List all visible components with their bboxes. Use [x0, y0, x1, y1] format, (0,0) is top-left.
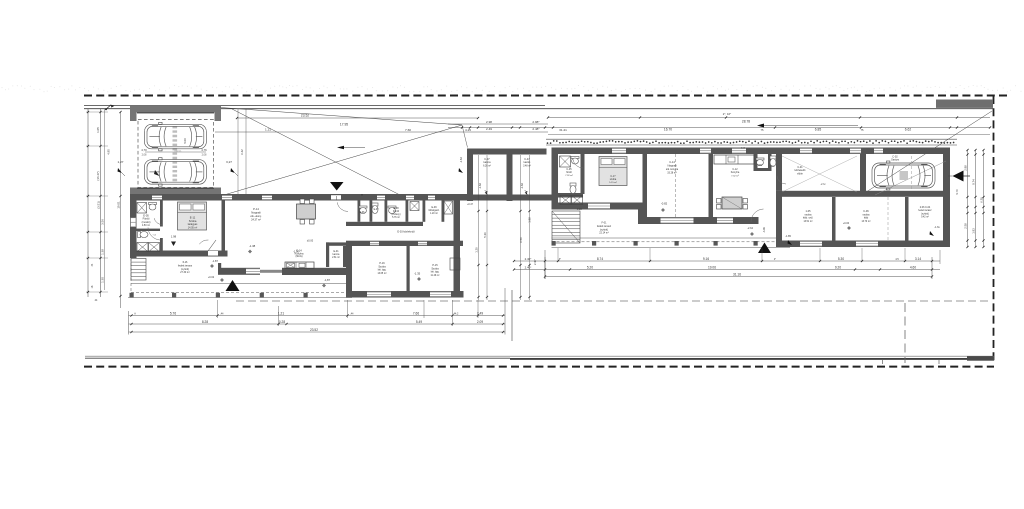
svg-text:tár.: tár.: [771, 165, 774, 168]
svg-text:±0.00: ±0.00: [307, 240, 314, 243]
svg-text:Garázs: Garázs: [891, 159, 900, 162]
svg-text:kazán: kazán: [524, 161, 531, 164]
svg-text:fedett terasz: fedett terasz: [918, 209, 932, 212]
svg-text:-1.6x: -1.6x: [934, 226, 940, 229]
svg-text:1,27: 1,27: [117, 160, 123, 164]
svg-text:+0.00: +0.00: [843, 222, 850, 225]
svg-text:▼: ▼: [361, 193, 364, 197]
svg-text:2.40°: 2.40°: [533, 259, 537, 265]
svg-text:C-14: C-14: [669, 160, 675, 164]
svg-text:16.70: 16.70: [664, 128, 672, 132]
svg-text:(3.51): (3.51): [97, 201, 101, 209]
svg-text:előtér: előtér: [797, 172, 803, 175]
svg-text:-2.3√: -2.3√: [820, 183, 826, 186]
svg-text:44,2: 44,2: [454, 312, 459, 315]
svg-text:2.40°: 2.40°: [525, 257, 532, 261]
svg-text:6.30: 6.30: [980, 197, 984, 203]
svg-text:13.70 m²: 13.70 m²: [861, 220, 870, 223]
svg-text:14.05 m²: 14.05 m²: [188, 226, 198, 229]
svg-text:14.5 m²: 14.5 m²: [609, 181, 617, 184]
svg-text:22.14 m²: 22.14 m²: [599, 232, 609, 235]
svg-text:1.21: 1.21: [265, 128, 271, 132]
svg-text:31.16: 31.16: [733, 272, 741, 276]
svg-text:két. ágy.: két. ágy.: [431, 271, 440, 274]
svg-text:szoba: szoba: [863, 212, 870, 216]
svg-text:6.62: 6.62: [905, 128, 912, 132]
svg-text:17.95: 17.95: [340, 123, 348, 127]
svg-text:31.41: 31.41: [559, 128, 567, 132]
svg-text:33.28 m²: 33.28 m²: [667, 171, 677, 174]
svg-text:23.52: 23.52: [301, 113, 309, 117]
svg-text:4°: 4°: [774, 258, 776, 261]
svg-text:4.50 m²: 4.50 m²: [142, 224, 150, 227]
svg-text:Nappali: Nappali: [251, 211, 261, 215]
svg-text:1.20: 1.20: [475, 247, 479, 253]
svg-text:2.09: 2.09: [477, 320, 483, 324]
svg-text:Szoba: Szoba: [378, 264, 386, 268]
svg-text:5.36: 5.36: [483, 232, 487, 238]
svg-text:3°: 3°: [559, 258, 561, 261]
svg-text:szoba: szoba: [805, 212, 812, 216]
svg-text:szoba: szoba: [610, 178, 617, 181]
svg-text:-1.38: -1.38: [249, 244, 256, 248]
svg-text:E-11: E-11: [190, 216, 196, 220]
svg-text:-0.82: -0.82: [661, 202, 668, 206]
svg-text:+0.47: +0.47: [467, 204, 474, 206]
svg-text:19.06: 19.06: [708, 265, 716, 269]
svg-text:Nappali: Nappali: [667, 164, 677, 168]
svg-text:4,70: 4,70: [141, 148, 147, 152]
svg-text:7.66: 7.66: [413, 311, 419, 315]
svg-text:13.65 m²: 13.65 m²: [377, 272, 386, 275]
svg-text:5.00: 5.00: [183, 138, 187, 144]
svg-text:1.98: 1.98: [171, 235, 177, 239]
svg-text:6.85: 6.85: [815, 128, 822, 132]
svg-text:2.49: 2.49: [486, 127, 492, 131]
svg-text:27.30 m²: 27.30 m²: [180, 271, 190, 274]
svg-text:5.20: 5.20: [587, 265, 593, 269]
svg-text:5.49: 5.49: [416, 320, 422, 324]
svg-text:11.46 m²: 11.46 m²: [431, 274, 440, 277]
svg-text:3.14: 3.14: [915, 257, 921, 261]
svg-text:4.85: 4.85: [107, 149, 111, 155]
svg-text:7.32 m²: 7.32 m²: [731, 174, 739, 177]
svg-text:fedett terasz: fedett terasz: [178, 263, 193, 267]
svg-text:fürdő: fürdő: [566, 171, 572, 174]
svg-text:Konyha: Konyha: [731, 171, 740, 174]
svg-text:1.05: 1.05: [96, 127, 100, 133]
svg-text:közlekedő: közlekedő: [795, 169, 806, 172]
svg-text:6.50: 6.50: [519, 237, 523, 243]
svg-text:2°, 16°: 2°, 16°: [723, 112, 731, 116]
svg-text:8.28: 8.28: [202, 320, 208, 324]
svg-text:2.40°: 2.40°: [525, 265, 532, 269]
svg-text:háló. szül.: háló. szül.: [803, 218, 814, 220]
svg-text:2.61 m²: 2.61 m²: [332, 256, 340, 259]
svg-text:1.38: 1.38: [101, 249, 105, 255]
svg-text:E-03 közlekedő: E-03 közlekedő: [397, 231, 415, 234]
svg-text:24.37 m²: 24.37 m²: [251, 218, 261, 221]
svg-text:-1.36: -1.36: [293, 250, 299, 254]
svg-text:1.21: 1.21: [278, 311, 284, 315]
svg-text:9.16: 9.16: [703, 257, 709, 261]
svg-text:2,08: 2,08: [202, 154, 207, 157]
svg-text:háló: háló: [864, 218, 869, 220]
svg-text:23.52: 23.52: [310, 328, 318, 332]
svg-text:9.20: 9.20: [835, 265, 841, 269]
svg-text:két. ágy.: két. ágy.: [378, 269, 387, 272]
svg-text:1.30: 1.30: [101, 277, 105, 283]
svg-text:-0.15: -0.15: [576, 208, 582, 211]
svg-text:WC: WC: [758, 165, 762, 167]
svg-text:kamra: kamra: [333, 253, 340, 256]
svg-text:(16.47): (16.47): [96, 171, 100, 180]
svg-text:9.42 m²: 9.42 m²: [921, 216, 929, 219]
svg-text:(zuhany): (zuhany): [392, 214, 401, 216]
svg-text:7.60: 7.60: [405, 128, 411, 132]
svg-text:2.58: 2.58: [964, 223, 968, 229]
svg-text:8.74: 8.74: [597, 257, 603, 261]
svg-text:3,27: 3,27: [226, 160, 232, 164]
svg-text:2.48°: 2.48°: [532, 127, 540, 131]
svg-text:Mósógard.: Mósógard.: [429, 209, 440, 212]
svg-text:-3.06: -3.06: [763, 227, 766, 233]
svg-text:5.76: 5.76: [170, 311, 176, 315]
svg-text:E-06: E-06: [360, 212, 366, 214]
svg-text:E-07: E-07: [374, 209, 380, 211]
svg-text:19.01: 19.01: [117, 201, 121, 209]
svg-text:2.98: 2.98: [486, 120, 492, 124]
svg-text:(nyitott): (nyitott): [921, 212, 929, 215]
svg-text:0.28: 0.28: [279, 320, 285, 324]
svg-text:1.93: 1.93: [972, 228, 976, 234]
svg-text:4.25: 4.25: [465, 128, 471, 132]
svg-text:-1.62: -1.62: [459, 156, 463, 162]
svg-text:-1,87: -1,87: [324, 278, 331, 282]
svg-text:-2.34: -2.34: [747, 227, 753, 230]
svg-text:Fürdő: Fürdő: [393, 210, 400, 213]
svg-text:E-09: E-09: [431, 206, 437, 209]
svg-text:3.48 m²: 3.48 m²: [523, 164, 531, 167]
svg-text:5.30: 5.30: [838, 257, 844, 261]
svg-text:Szoba: Szoba: [431, 266, 439, 270]
svg-text:28.78: 28.78: [742, 120, 750, 124]
svg-text:1.98: 1.98: [528, 217, 532, 223]
svg-text:9.70: 9.70: [955, 189, 959, 195]
svg-text:7.92 m²: 7.92 m²: [565, 174, 573, 177]
svg-text:4.60: 4.60: [910, 265, 916, 269]
svg-text:-1.35: -1.35: [414, 272, 421, 276]
svg-text:1.20 m²: 1.20 m²: [430, 212, 438, 215]
svg-text:(főzős): (főzős): [295, 256, 302, 258]
svg-text:fedett terasz: fedett terasz: [597, 224, 612, 228]
svg-text:2,08: 2,08: [142, 154, 147, 157]
svg-text:13.51 m²: 13.51 m²: [803, 220, 812, 223]
svg-text:2.98: 2.98: [964, 165, 968, 171]
svg-text:-1.85: -1.85: [785, 235, 791, 238]
svg-text:3.56: 3.56: [101, 219, 105, 225]
svg-text:+0.02: +0.02: [208, 276, 215, 279]
svg-text:kamra: kamra: [484, 161, 492, 164]
svg-text:6.42: 6.42: [240, 149, 244, 155]
svg-text:5.76 m²: 5.76 m²: [392, 216, 400, 219]
svg-text:9.74: 9.74: [972, 179, 976, 185]
svg-text:2.98°: 2.98°: [532, 120, 540, 124]
svg-text:-1.87: -1.87: [212, 259, 218, 263]
